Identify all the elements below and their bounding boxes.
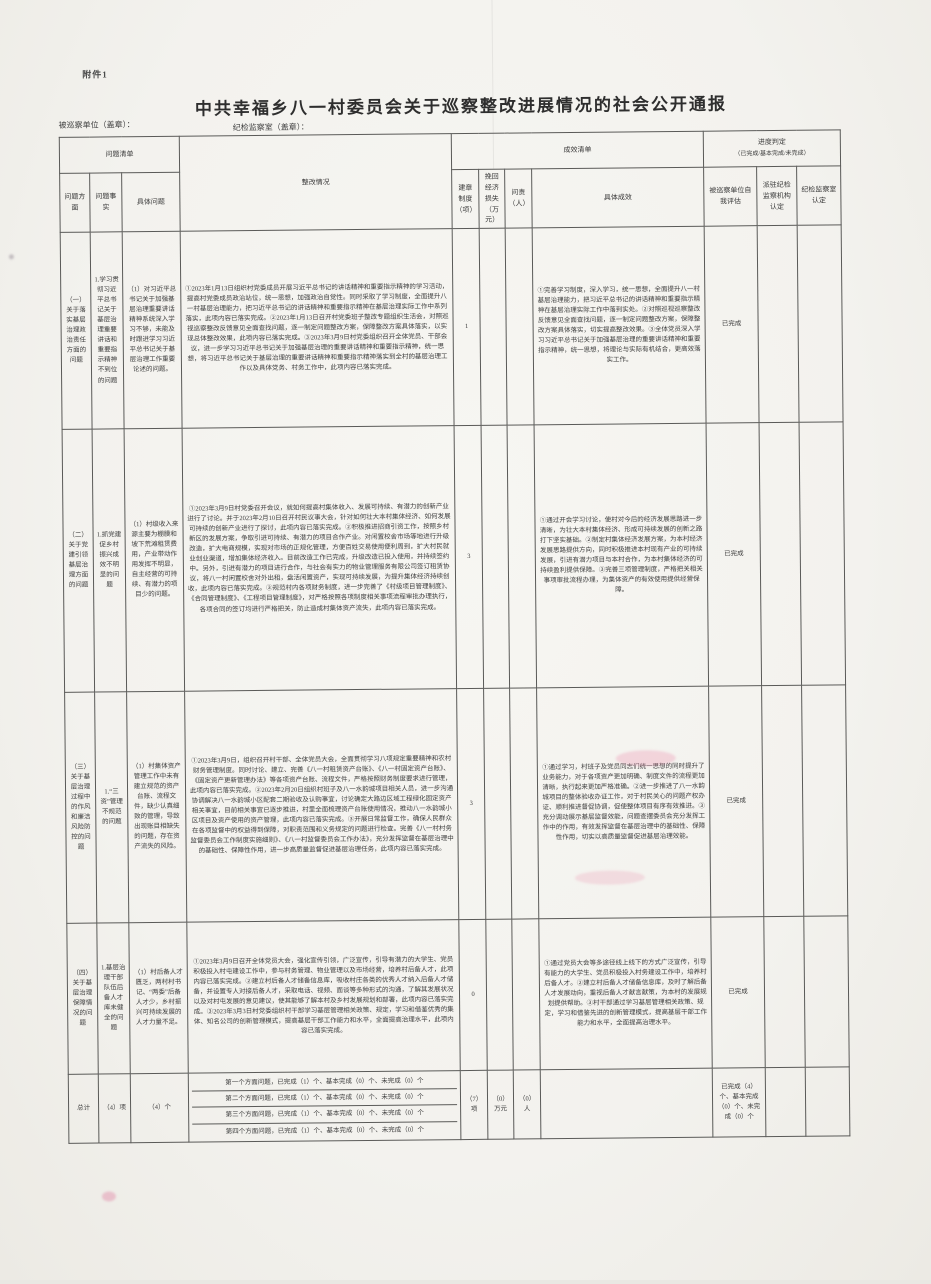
cell-accountability [507, 425, 537, 688]
header-effect-list: 成效清单 [451, 131, 703, 169]
cell-accountability [510, 688, 539, 919]
cell-office-confirm [799, 422, 846, 685]
cell-rectification: ①2023年3月9日召开全体党员大会，强化宣传引领，广泛宣传，引导有潜力的大学生… [187, 920, 460, 1074]
scan-speck [9, 254, 14, 259]
total-accountability: （0）人 [513, 1070, 541, 1139]
total-agency-confirm [765, 1067, 806, 1136]
total-self-assessment: 已完成（4）个、基本完成（0）个、未完成（0）个 [712, 1068, 766, 1137]
cell-self-assessment: 已完成 [711, 917, 765, 1069]
total-breakdown: 第一个方面问题，已完成（1）个、基本完成（0）个、未完成（0）个 第二个方面问题… [188, 1071, 461, 1142]
header-agency-confirm: 派驻纪检监察机构认定 [757, 166, 798, 226]
pink-scan-mark [102, 1191, 116, 1201]
cell-fact: 1.学习贯彻习近平总书记关于基层治理重要讲话和重要指示精神不到位的问题 [90, 232, 124, 429]
cell-self-assessment: 已完成 [704, 226, 759, 423]
header-problem-aspect: 问题方面 [60, 173, 91, 233]
cell-effect: ①通过党员大会等多途径线上线下的方式广泛宣传，引导有能力的大学生、党员积极投入村… [539, 917, 712, 1070]
total-problems: （4）个 [130, 1073, 189, 1142]
header-problem-fact: 问题事实 [90, 173, 123, 233]
supervision-office-label: 纪检监察室（盖章）： [233, 121, 309, 133]
header-specific-effect: 具体成效 [532, 167, 705, 228]
cell-rules: 1 [452, 229, 481, 426]
cell-rectification: ①2023年1月13日组织村党委成员开展习近平总书记的讲话精神和重要指示精神的学… [180, 229, 454, 429]
header-office-confirm: 纪检监察室认定 [797, 166, 842, 226]
cell-loss [481, 425, 510, 688]
cell-aspect: （四）关于基层治理保障情况的问题 [67, 923, 98, 1074]
header-rules-built: 建章制度（项） [452, 169, 480, 228]
cell-rules: 3 [454, 426, 484, 689]
cell-loss [486, 919, 513, 1070]
cell-fact: 1.基层治理干部队伍后备人才库未健全的问题 [97, 923, 130, 1074]
cell-effect: ①通过开会学习讨论，使村对今后的经济发展思路进一步清晰，为壮大本村集体经济、形成… [534, 423, 709, 688]
total-office-confirm [805, 1067, 850, 1136]
header-problem-list: 问题清单 [59, 136, 179, 173]
total-row: 总计 （4）项 （4）个 第一个方面问题，已完成（1）个、基本完成（0）个、未完… [68, 1067, 850, 1143]
total-rules: （7）项 [460, 1071, 488, 1140]
table-row: （四）关于基层治理保障情况的问题 1.基层治理干部队伍后备人才库未健全的问题 （… [67, 916, 849, 1074]
cell-office-confirm [797, 225, 843, 422]
cell-self-assessment: 已完成 [709, 686, 764, 917]
cell-rules: 3 [457, 689, 486, 920]
total-loss: （0）万元 [487, 1070, 514, 1139]
cell-agency-confirm [757, 226, 799, 423]
cell-agency-confirm [764, 916, 805, 1067]
cell-agency-confirm [762, 685, 804, 916]
progress-judgment-note: （已完成/基本完成/未完成） [707, 150, 837, 161]
cell-rectification: ①2023年3月9日村党委召开会议，就如何提高村集体收入、发展可持续、有潜力的创… [182, 426, 457, 692]
cell-rectification: ①2023年3月9日，组织召开村干部、全体党员大会，全面贯彻学习八项规定重要精神… [185, 689, 459, 923]
cell-rules: 0 [459, 920, 487, 1071]
cell-accountability [512, 919, 540, 1070]
cell-self-assessment: 已完成 [706, 423, 762, 686]
cell-effect: ①完善学习制度，深入学习，统一思想，全面提升八一村基层治理能力，把习近平总书记的… [532, 226, 706, 425]
cell-problem: （1）对习近平总书记关于加强基层治理重要讲话精神系统深入学习不够，未能及时跟进学… [122, 231, 182, 429]
total-breakdown-line: 第四个方面问题，已完成（1）个、基本完成（0）个、未完成（0）个 [192, 1122, 457, 1140]
table-row: （二）关于党建引领基层治理方面的问题 1.抓党建促乡村振兴成效不明显的问题 （1… [62, 422, 846, 692]
header-self-assessment: 被巡察单位自我评估 [704, 167, 758, 227]
cell-aspect: （一）关于落实基层治理政治责任方面的问题 [60, 232, 92, 429]
header-accountability: 问责（人） [505, 169, 533, 228]
header-specific-problem: 具体问题 [122, 172, 181, 232]
header-recovered-loss: 挽回经济损失（万元） [479, 169, 506, 228]
inspected-unit-label: 被巡察单位（盖章）： [59, 119, 135, 131]
rectification-progress-table: 问题清单 整改情况 成效清单 进度判定 （已完成/基本完成/未完成） 问题方面 … [59, 129, 851, 1143]
total-aspects: （4）项 [98, 1074, 131, 1143]
cell-office-confirm [804, 916, 849, 1067]
total-label: 总计 [68, 1074, 99, 1143]
cell-aspect: （二）关于党建引领基层治理方面的问题 [62, 429, 95, 692]
table-row: （一）关于落实基层治理政治责任方面的问题 1.学习贯彻习近平总书记关于基层治理重… [60, 225, 843, 429]
cell-loss [479, 228, 507, 425]
cell-agency-confirm [759, 423, 802, 686]
cell-office-confirm [802, 685, 848, 916]
cell-fact: 1.“三资”管理不规范的问题 [95, 692, 129, 923]
progress-judgment-title: 进度判定 [707, 137, 837, 149]
cell-problem: （1）村集体资产管理工作中未有建立规范的资产台账、流程文件，缺少认真细致的管理，… [127, 691, 187, 923]
total-effect [540, 1068, 713, 1138]
cell-problem: （1）村后备人才匮乏，两村村书记、“两委”后备人才少，乡村振兴可持续发展的人才力… [129, 922, 188, 1074]
cell-fact: 1.抓党建促乡村振兴成效不明显的问题 [92, 429, 127, 692]
cell-problem: （1）村级收入来源主要为棚膜和坡下荒滩租赁费用，产业带动作用发挥不明显，自主经营… [124, 428, 185, 692]
page-title: 中共幸福乡八一村委员会关于巡察整改进展情况的社会公开通报 [0, 88, 927, 122]
cell-accountability [505, 228, 534, 425]
cell-loss [484, 688, 512, 919]
header-progress-judgment: 进度判定 （已完成/基本完成/未完成） [703, 130, 840, 167]
header-rectification: 整改情况 [179, 134, 452, 232]
cell-aspect: （三）关于基层治理过程中的作风和廉洁风险防控的问题 [65, 692, 97, 923]
cell-effect: ①通过学习，村班子及党员同志们统一思想的同时提升了业务能力，对于各项资产更加明确… [537, 686, 711, 919]
document-sheet: 附件1 中共幸福乡八一村委员会关于巡察整改进展情况的社会公开通报 被巡察单位（盖… [0, 0, 931, 1284]
attachment-label: 附件1 [82, 67, 108, 80]
table-row: （三）关于基层治理过程中的作风和廉洁风险防控的问题 1.“三资”管理不规范的问题… [65, 685, 848, 923]
